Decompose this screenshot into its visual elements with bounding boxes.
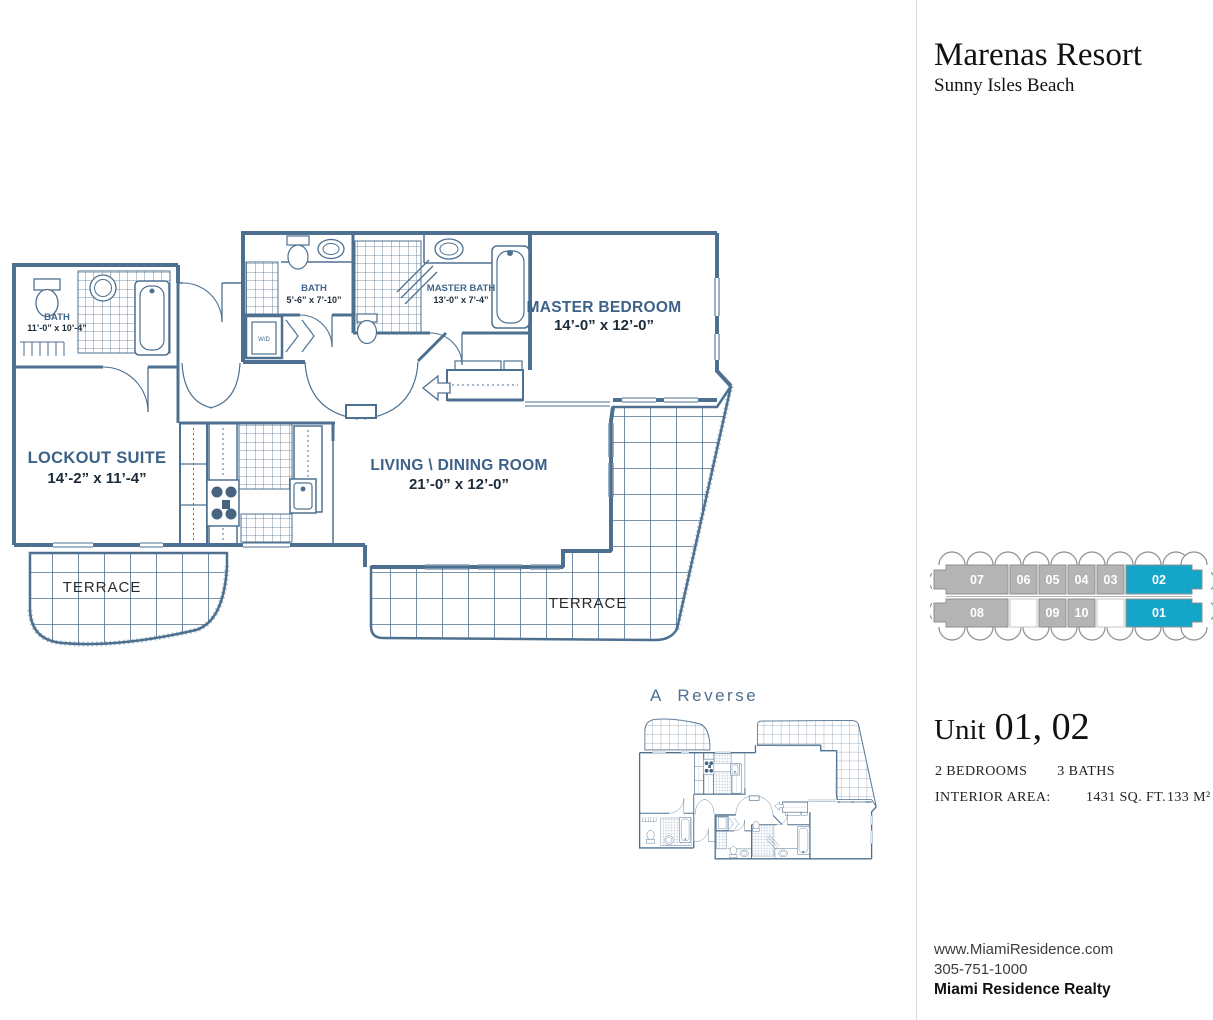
baths-text: 3 BATHS <box>1057 764 1115 779</box>
keyplan-label-08: 08 <box>970 606 984 620</box>
wd-label: W/D <box>258 337 270 343</box>
flyer-page: MASTER BEDROOM 14’-0” x 12’-0” LIVING \ … <box>0 0 1213 1020</box>
terrace-right-label: TERRACE <box>549 595 628 612</box>
bath-fixtures <box>281 236 353 269</box>
bath-a-label: BATH <box>301 283 327 294</box>
interior-area-label: INTERIOR AREA: <box>935 790 1051 805</box>
entry-door <box>178 283 243 322</box>
keyplan-empty-cell <box>1010 599 1037 627</box>
unit-heading: Unit 01, 02 <box>934 705 1090 749</box>
tile-floor <box>241 514 292 542</box>
master-bath-dims: 13’-0” x 7’-4” <box>433 295 488 305</box>
washer-dryer-closet <box>246 316 314 358</box>
lockout-suite-label: LOCKOUT SUITE <box>28 449 167 467</box>
interior-area-sqft: 1431 SQ. FT. <box>1086 790 1166 806</box>
resort-title: Marenas Resort <box>934 36 1142 74</box>
keyplan-empty-cell <box>1097 599 1124 627</box>
unit-prefix: Unit <box>934 714 986 747</box>
bedrooms-text: 2 BEDROOMS <box>935 764 1027 779</box>
interior-area-m2: 133 M² <box>1167 790 1211 806</box>
contact-block: www.MiamiResidence.com 305-751-1000 Miam… <box>934 940 1113 1000</box>
resort-subtitle: Sunny Isles Beach <box>934 74 1142 98</box>
bed-bath-line: 2 BEDROOMS3 BATHS <box>935 764 1213 780</box>
keyplan-label-07: 07 <box>970 573 984 587</box>
terrace-left-label: TERRACE <box>63 579 142 596</box>
tile-floor <box>239 423 292 489</box>
bedroom-closet <box>423 361 523 400</box>
tile-floor <box>246 262 278 314</box>
keyplan-label-03: 03 <box>1104 573 1118 587</box>
keyplan-label-06: 06 <box>1017 573 1031 587</box>
company-name: Miami Residence Realty <box>934 980 1113 1000</box>
website-text: www.MiamiResidence.com <box>934 940 1113 960</box>
keyplan-label-10: 10 <box>1075 606 1089 620</box>
mini-reverse-plan <box>640 719 877 859</box>
master-bath-label: MASTER BATH <box>427 283 496 294</box>
brand-block: Marenas Resort Sunny Isles Beach <box>934 36 1142 98</box>
living-dining-dims: 21’-0” x 12’-0” <box>409 476 509 493</box>
living-dining-label: LIVING \ DINING ROOM <box>370 457 547 474</box>
terrace-left-deck <box>30 553 227 644</box>
keyplan-label-01: 01 <box>1152 606 1166 620</box>
bath-b-dims: 11’-0” x 10’-4” <box>27 323 87 333</box>
master-bedroom-dims: 14’-0” x 12’-0” <box>554 317 654 334</box>
keyplan-label-09: 09 <box>1046 606 1060 620</box>
building-key-plan: 07 06 05 04 03 02 08 09 10 01 <box>930 551 1213 643</box>
bath-b-label: BATH <box>44 312 70 323</box>
panel-divider <box>916 0 917 1020</box>
foyer-arches <box>182 362 418 419</box>
lockout-suite-dims: 14’-2” x 11’-4” <box>47 470 146 487</box>
master-bedroom-label: MASTER BEDROOM <box>527 299 682 316</box>
phone-text: 305-751-1000 <box>934 960 1113 980</box>
interior-area-line: INTERIOR AREA: 1431 SQ. FT. 133 M² <box>935 790 1213 806</box>
bath-a-dims: 5’-6” x 7’-10” <box>286 295 341 305</box>
keyplan-label-05: 05 <box>1046 573 1060 587</box>
unit-numbers: 01, 02 <box>995 705 1090 749</box>
reverse-plan-label: A Reverse <box>650 686 758 706</box>
keyplan-label-04: 04 <box>1075 573 1089 587</box>
floorplan-drawing: MASTER BEDROOM 14’-0” x 12’-0” LIVING \ … <box>0 0 890 1020</box>
keyplan-label-02: 02 <box>1152 573 1166 587</box>
